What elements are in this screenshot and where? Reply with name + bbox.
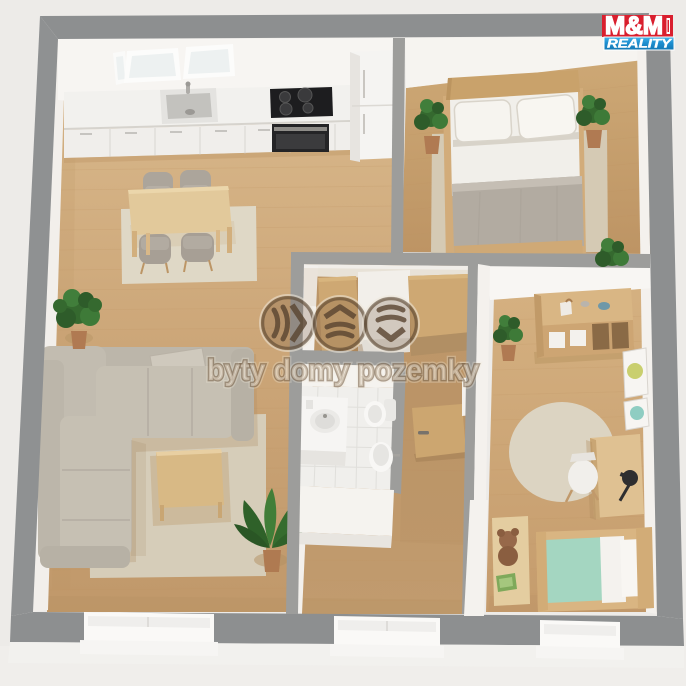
svg-text:M&M: M&M [605,12,663,40]
svg-text:REALITY: REALITY [607,39,673,51]
svg-text:byty domy pozemky: byty domy pozemky [207,354,479,387]
